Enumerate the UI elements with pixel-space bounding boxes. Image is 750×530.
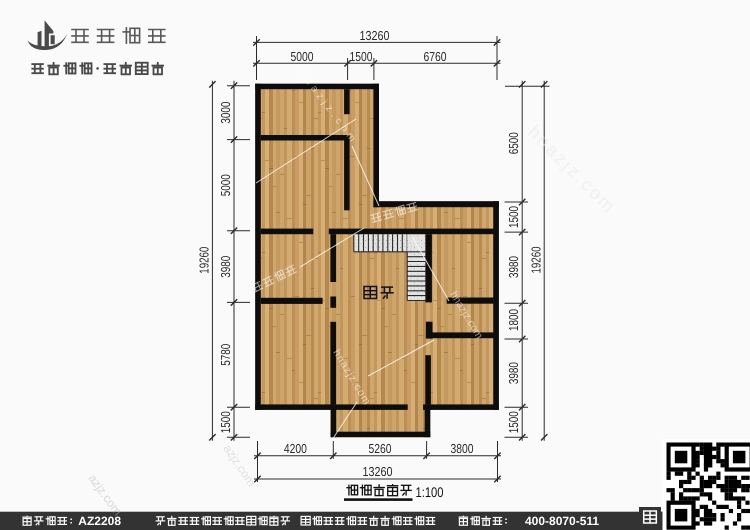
svg-text:19260: 19260 bbox=[528, 247, 543, 274]
svg-text:5000: 5000 bbox=[218, 174, 233, 196]
svg-text:5260: 5260 bbox=[369, 441, 392, 456]
svg-text:13260: 13260 bbox=[363, 464, 393, 479]
svg-text:3800: 3800 bbox=[451, 441, 474, 456]
svg-text:1500: 1500 bbox=[350, 49, 373, 64]
svg-text:3980: 3980 bbox=[506, 256, 521, 278]
svg-text:19260: 19260 bbox=[196, 247, 211, 274]
svg-text:3980: 3980 bbox=[218, 256, 233, 278]
svg-text:13260: 13260 bbox=[360, 28, 390, 43]
svg-text:1:100: 1:100 bbox=[416, 484, 444, 500]
svg-text:1800: 1800 bbox=[506, 309, 521, 331]
svg-text:1500: 1500 bbox=[506, 411, 521, 433]
svg-text:5000: 5000 bbox=[291, 49, 314, 64]
svg-text:5780: 5780 bbox=[218, 344, 233, 366]
svg-text:6500: 6500 bbox=[506, 132, 521, 154]
svg-text:1500: 1500 bbox=[506, 206, 521, 228]
svg-text:400-8070-511: 400-8070-511 bbox=[525, 514, 599, 528]
svg-text:3980: 3980 bbox=[506, 362, 521, 384]
svg-text:4200: 4200 bbox=[284, 441, 307, 456]
svg-text:6760: 6760 bbox=[424, 49, 447, 64]
svg-text:3000: 3000 bbox=[218, 102, 233, 124]
svg-text:1500: 1500 bbox=[218, 411, 233, 433]
